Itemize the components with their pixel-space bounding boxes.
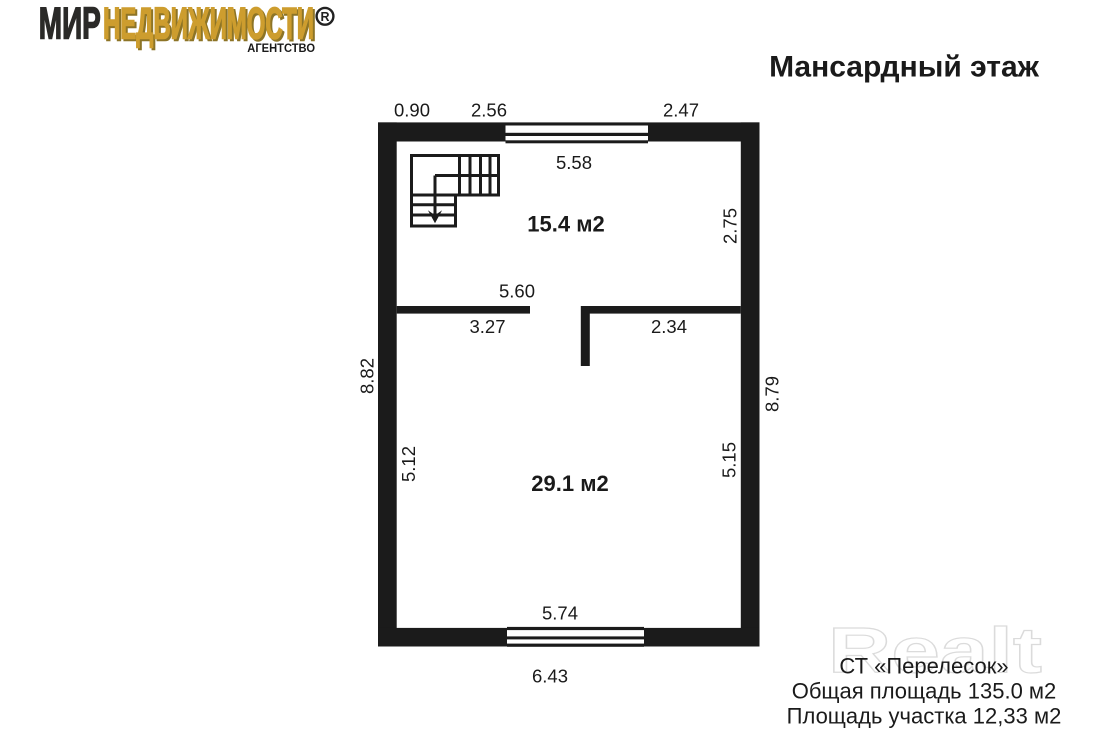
svg-text:5.60: 5.60 <box>499 281 535 302</box>
svg-text:8.82: 8.82 <box>357 358 378 394</box>
svg-text:R: R <box>320 10 329 24</box>
svg-text:Мансардный этаж: Мансардный этаж <box>769 50 1040 83</box>
svg-text:2.75: 2.75 <box>720 208 741 244</box>
svg-text:15.4 м2: 15.4 м2 <box>527 212 604 237</box>
svg-text:Площадь участка 12,33 м2: Площадь участка 12,33 м2 <box>787 704 1062 729</box>
svg-text:6.43: 6.43 <box>532 666 568 687</box>
svg-text:29.1 м2: 29.1 м2 <box>531 471 608 496</box>
svg-text:2.47: 2.47 <box>663 99 699 120</box>
svg-text:0.90: 0.90 <box>394 99 430 120</box>
svg-text:СТ «Перелесок»: СТ «Перелесок» <box>839 654 1008 679</box>
svg-text:МИР: МИР <box>39 0 101 48</box>
svg-text:8.79: 8.79 <box>762 376 783 412</box>
svg-text:5.15: 5.15 <box>719 442 740 478</box>
svg-text:АГЕНТСТВО: АГЕНТСТВО <box>247 41 315 55</box>
svg-text:5.74: 5.74 <box>542 603 578 624</box>
svg-text:5.12: 5.12 <box>398 446 419 482</box>
svg-text:Общая площадь 135.0 м2: Общая площадь 135.0 м2 <box>792 679 1057 704</box>
svg-text:2.34: 2.34 <box>651 316 687 337</box>
svg-text:3.27: 3.27 <box>469 316 505 337</box>
svg-text:5.58: 5.58 <box>556 152 592 173</box>
svg-text:2.56: 2.56 <box>471 99 507 120</box>
